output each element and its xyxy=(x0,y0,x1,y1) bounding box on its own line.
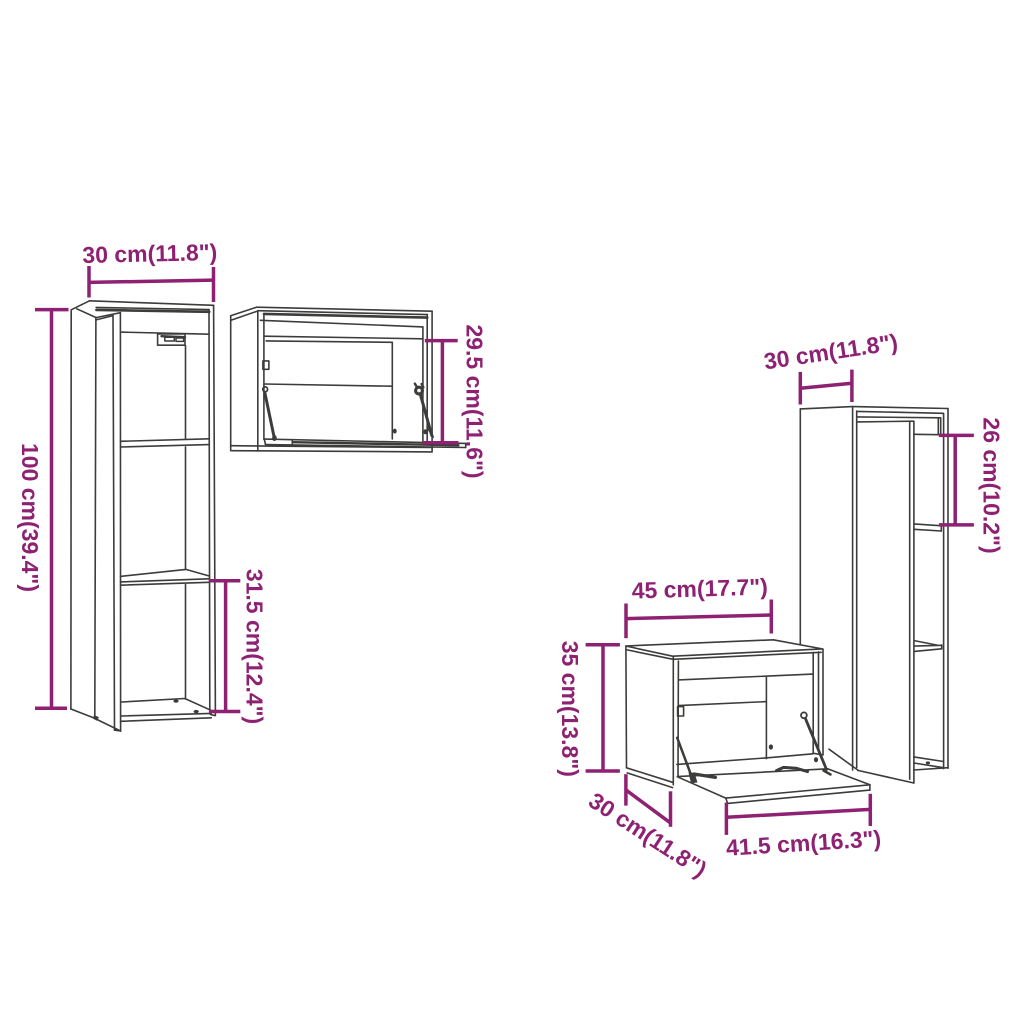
svg-text:31.5 cm(12.4"): 31.5 cm(12.4") xyxy=(241,569,267,724)
svg-text:100 cm(39.4"): 100 cm(39.4") xyxy=(17,443,43,592)
svg-text:35 cm(13.8"): 35 cm(13.8") xyxy=(557,641,583,777)
svg-text:30 cm(11.8"): 30 cm(11.8") xyxy=(82,239,217,268)
svg-text:45 cm(17.7"): 45 cm(17.7") xyxy=(631,573,768,603)
svg-text:29.5 cm(11.6"): 29.5 cm(11.6") xyxy=(461,324,487,478)
svg-text:26 cm(10.2"): 26 cm(10.2") xyxy=(979,417,1005,553)
